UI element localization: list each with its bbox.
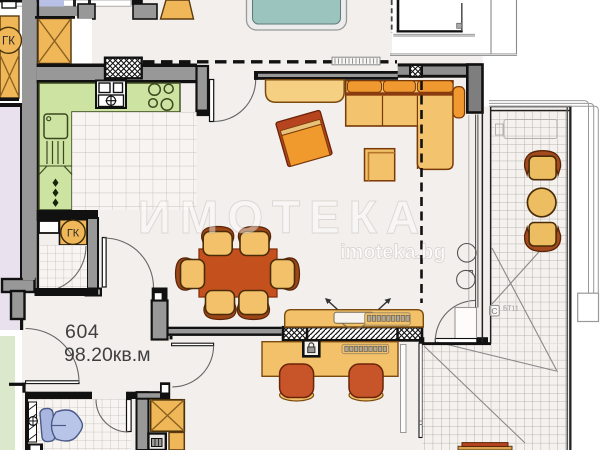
svg-text:ГК: ГК	[2, 36, 15, 48]
svg-text:БТ11: БТ11	[503, 306, 519, 313]
svg-text:604: 604	[65, 321, 99, 343]
svg-text:С: С	[491, 306, 497, 316]
svg-text:ИМОТЕКА: ИМОТЕКА	[138, 191, 428, 243]
svg-text:ГК: ГК	[67, 228, 80, 240]
svg-text:imoteka.bg: imoteka.bg	[340, 242, 446, 264]
svg-text:98.20кв.м: 98.20кв.м	[64, 344, 151, 366]
